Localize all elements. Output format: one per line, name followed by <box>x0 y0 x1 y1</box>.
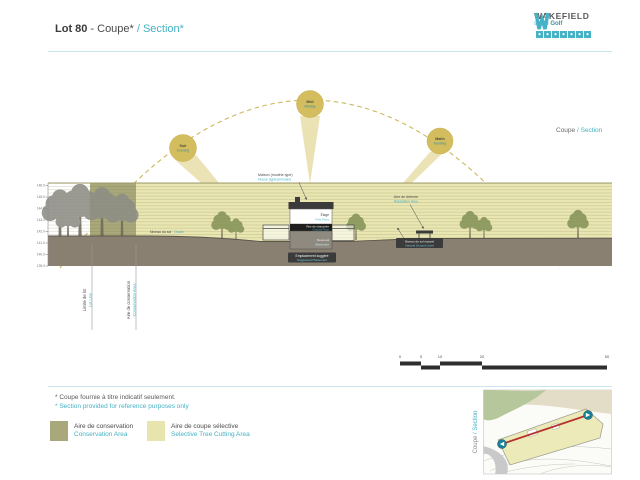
map-section-marker <box>498 440 507 449</box>
legend-selective-fr: Aire de coupe sélective <box>171 423 250 432</box>
suggested-placement-badge: Emplacement suggéré Suggested Placement <box>288 253 336 263</box>
conservation-boundary-fr: Aire de conservation <box>126 280 131 319</box>
title-en: / Section* <box>137 23 184 35</box>
grade-label-en: Grade <box>174 230 184 234</box>
map-section-marker <box>584 411 593 420</box>
legend-conservation-en: Conservation Area <box>74 431 133 440</box>
house-callout-fr: Maison (modèle type) <box>258 173 293 177</box>
scale-tick: 20 <box>480 354 485 359</box>
footer-divider <box>48 386 612 387</box>
chimney <box>295 197 300 203</box>
legend-conservation-fr: Aire de conservation <box>74 423 133 432</box>
header-divider <box>48 51 612 52</box>
amenity-pictogram-icon <box>576 31 583 38</box>
scale-bar: 0 5 10 20 50 <box>399 354 610 370</box>
map-view-label-fr: Coupe <box>473 434 479 453</box>
selective-cut-swatch <box>147 421 165 441</box>
view-label: Coupe / Section <box>556 127 603 134</box>
svg-text:140.0: 140.0 <box>37 253 45 257</box>
sun-label-fr: Matin <box>435 137 444 141</box>
house-callout-en: House (typical model) <box>258 178 291 182</box>
sun-label-en: Morning <box>434 142 446 146</box>
amenity-pictogram-icon <box>568 31 575 38</box>
page-title: Lot 80- Coupe*/ Section* <box>55 23 184 35</box>
svg-text:141.0: 141.0 <box>37 241 45 245</box>
scale-tick: 5 <box>420 354 423 359</box>
lot-line-label-fr: Limite de lot <box>82 288 87 311</box>
svg-text:139.0: 139.0 <box>37 264 45 268</box>
view-label-fr: Coupe <box>556 127 577 134</box>
location-map-inset: Coupe / Section <box>473 390 612 474</box>
relax-label-fr: Aire de détente <box>394 195 418 199</box>
svg-text:145.0: 145.0 <box>37 195 45 199</box>
right-deck <box>332 225 354 241</box>
sun-label-fr: Midi <box>306 100 313 104</box>
footnote-en: * Section provided for reference purpose… <box>55 403 189 412</box>
conservation-swatch <box>50 421 68 441</box>
natural-ground-en: Natural Ground Level <box>405 244 434 248</box>
house-section: Étage First Floor Rez-de-chaussée Ground… <box>289 197 334 249</box>
logo-tagline-golf: Golf <box>550 21 562 27</box>
suggested-en: Suggested Placement <box>297 258 327 262</box>
wakefield-logo: WAKEFIELD sur le Golf <box>534 12 618 38</box>
basement-label-en: Basement <box>315 242 329 246</box>
svg-text:143.0: 143.0 <box>37 218 45 222</box>
lot-number: Lot 80 <box>55 23 87 35</box>
legend-item-selective-cut: Aire de coupe sélective Selective Tree C… <box>147 421 250 441</box>
roof <box>289 202 334 209</box>
sun-label-fr: Soir <box>180 144 188 148</box>
lot-line-label-en: Lot Line <box>88 292 93 307</box>
scale-tick: 50 <box>605 354 610 359</box>
floor-label-fr: Étage <box>321 212 330 217</box>
sun-label-en: Evening <box>177 149 189 153</box>
amenity-pictogram-icon <box>584 31 591 38</box>
basement-label-fr: Sous-sol <box>317 238 329 242</box>
elevation-labels: 146.0 145.0 144.0 143.0 142.0 141.0 140.… <box>37 184 45 269</box>
plan-sheet: Soir Evening Midi Midday Matin Morning C… <box>0 0 640 480</box>
grade-label-fr: Niveau du sol <box>150 230 171 234</box>
scale-tick: 10 <box>438 354 443 359</box>
sun-evening-icon: Soir Evening <box>170 135 197 162</box>
svg-text:144.0: 144.0 <box>37 207 45 211</box>
svg-text:146.0: 146.0 <box>37 184 45 188</box>
amenity-pictogram-icon <box>552 31 559 38</box>
svg-text:142.0: 142.0 <box>37 230 45 234</box>
map-view-label-en: / Section <box>473 411 479 434</box>
floor-label-en: First Floor <box>316 217 330 221</box>
amenity-pictogram-icon <box>560 31 567 38</box>
grade-label: Niveau du sol Grade <box>150 230 184 234</box>
legend-selective-en: Selective Tree Cutting Area <box>171 431 250 440</box>
sun-label-en: Midday <box>305 105 316 109</box>
legend-item-conservation: Aire de conservation Conservation Area <box>50 421 133 441</box>
sun-midday-icon: Midi Midday <box>297 91 324 118</box>
scale-tick: 0 <box>399 354 402 359</box>
relax-label-en: Relaxation Area <box>394 200 418 204</box>
footnote: * Coupe fournie à titre indicatif seulem… <box>55 394 189 411</box>
map-view-label: Coupe / Section <box>473 411 479 454</box>
groundfloor-label-en: Ground Floor <box>313 228 330 232</box>
left-deck <box>263 225 289 240</box>
title-fr: - Coupe* <box>90 23 133 35</box>
footnote-fr: * Coupe fournie à titre indicatif seulem… <box>55 394 189 403</box>
sun-morning-icon: Matin Morning <box>427 128 453 154</box>
conservation-boundary-en: Conservation Area <box>132 283 137 317</box>
logo-w-icon <box>534 12 550 32</box>
view-label-en: / Section <box>577 127 603 134</box>
elevation-axis <box>46 183 49 266</box>
